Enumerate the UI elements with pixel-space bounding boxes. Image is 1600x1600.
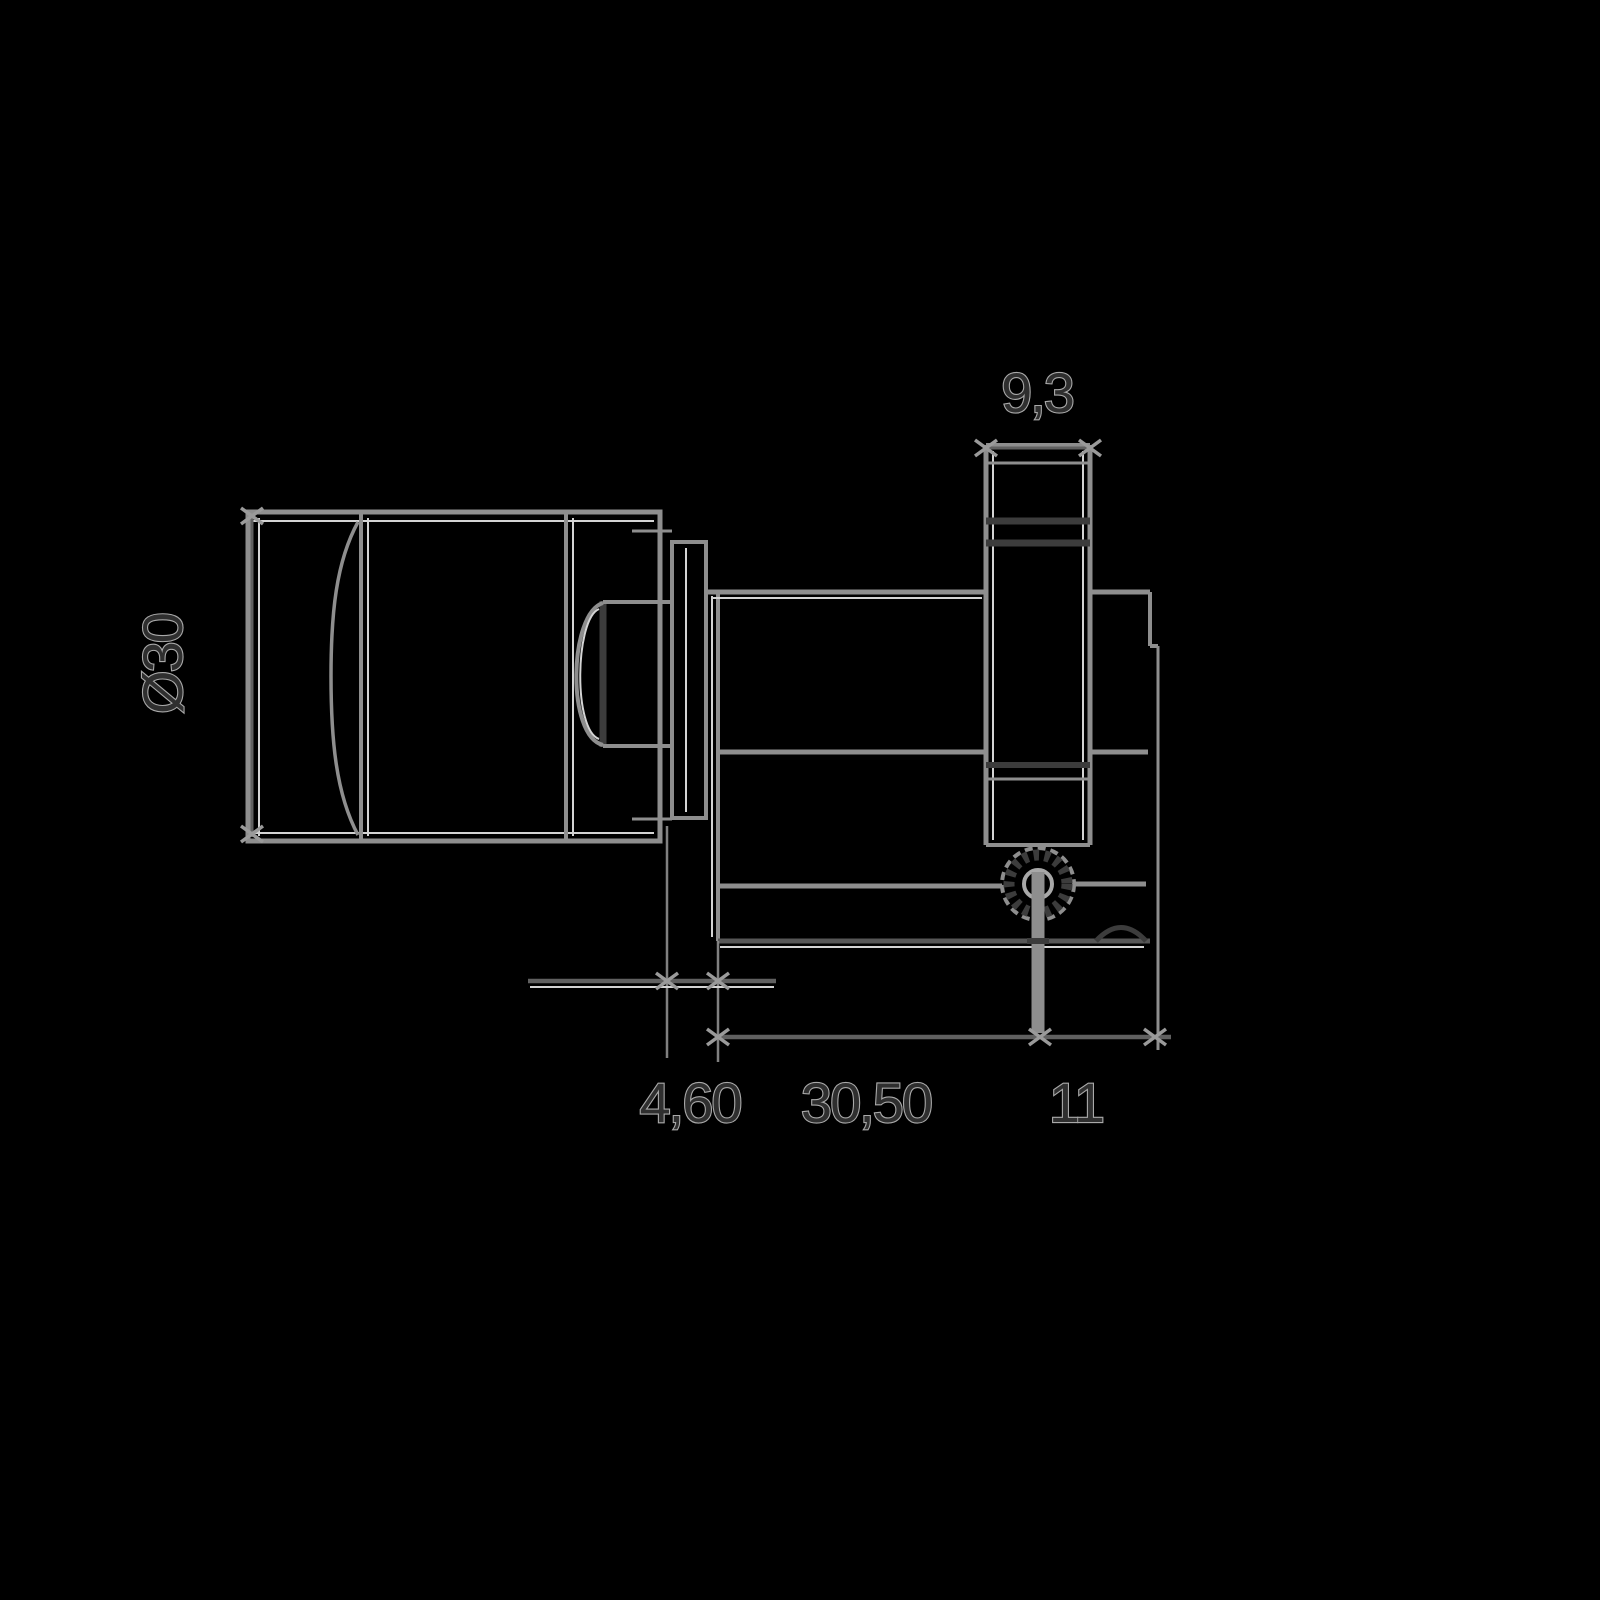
- dim-label-flange-thickness: 4,60: [640, 1071, 741, 1134]
- dimension-cam-width: 9,3: [975, 361, 1101, 456]
- dimension-flange-thickness: 4,60: [528, 826, 776, 1134]
- knob: [248, 512, 660, 841]
- knob-profile-arc: [331, 522, 358, 835]
- dimension-knob-diameter: Ø30: [131, 508, 263, 842]
- flange-rear-stubs: [632, 531, 672, 819]
- dim-label-knob-diameter: Ø30: [131, 614, 194, 714]
- dim-label-cam-width: 9,3: [1001, 361, 1073, 424]
- extension-lines-flange: [667, 826, 718, 1062]
- dim-label-rear-offset: 11: [1049, 1071, 1103, 1134]
- body-rear-step: [1150, 592, 1158, 646]
- body-lower-line: [718, 884, 1146, 886]
- flange-outline: [672, 542, 706, 818]
- cam-bar-upper-grooves: [986, 521, 1090, 543]
- cylinder-technical-drawing: Ø30 9,3 4,60 30,50 11: [0, 0, 1600, 1600]
- dimension-body-length-and-rear: 30,50 11: [707, 1029, 1171, 1134]
- cam-bar-side-highlights: [993, 451, 1083, 840]
- dim-label-body-length: 30,50: [801, 1071, 931, 1134]
- cam-bar: [986, 445, 1090, 845]
- flange-plate: [632, 531, 706, 819]
- cam-bar-sides: [986, 445, 1090, 845]
- knob-outline: [248, 512, 660, 841]
